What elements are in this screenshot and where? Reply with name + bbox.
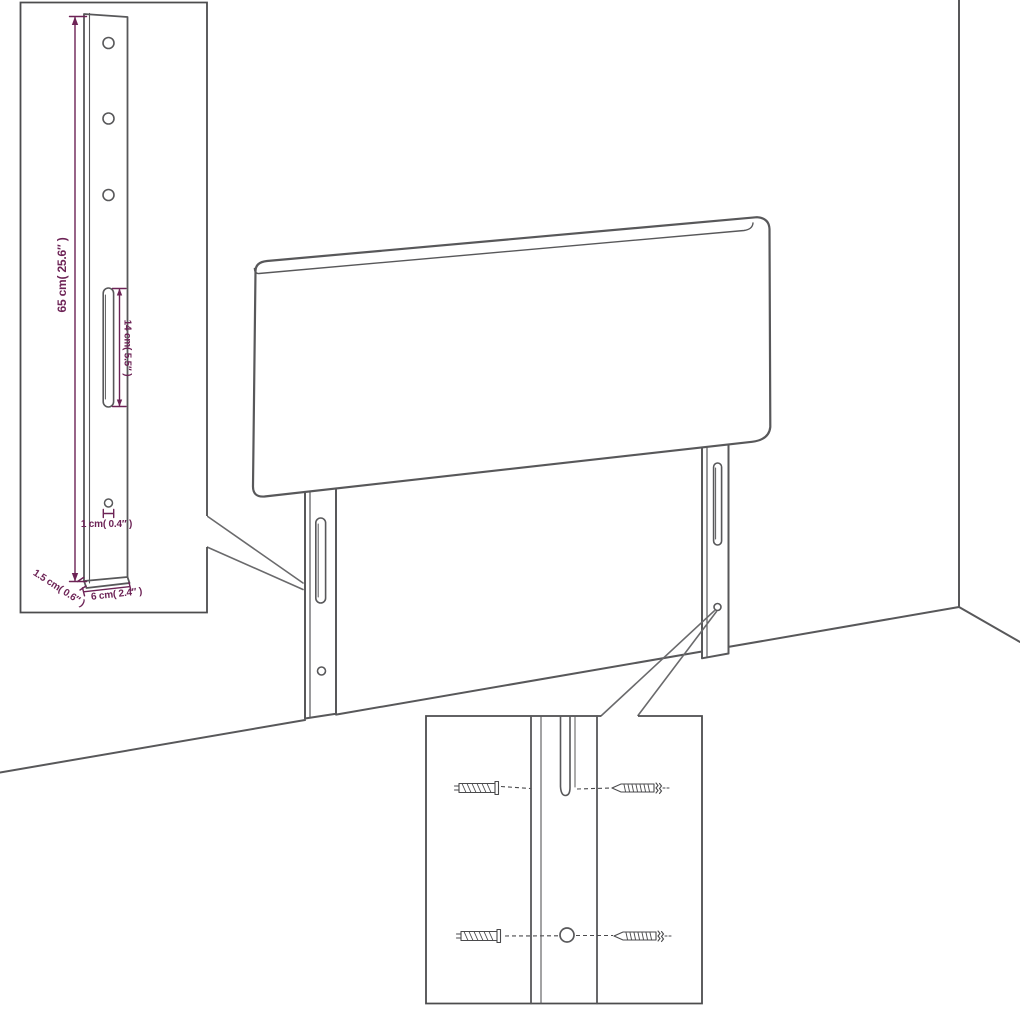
right-leg-face [702, 426, 729, 658]
height-dimension-label: 65 cm( 25.6″ ) [55, 237, 69, 312]
slot-dimension-label: 14 cm( 5.5″ ) [122, 320, 133, 377]
diagram-canvas: 65 cm( 25.6″ ) 14 cm( 5.5″ ) 1 cm( 0.4″ … [0, 0, 1020, 1020]
left-leg [305, 466, 336, 719]
mounting-detail-inset-background [426, 716, 702, 1004]
hole-dimension-label: 1 cm( 0.4″ ) [81, 519, 132, 530]
product-dimension-diagram: 65 cm( 25.6″ ) 14 cm( 5.5″ ) 1 cm( 0.4″ … [0, 0, 1020, 1020]
right-leg [702, 426, 729, 658]
callout-lines [207, 516, 717, 716]
mounting-detail-callout [602, 611, 717, 716]
leg-detail-inset: 65 cm( 25.6″ ) 14 cm( 5.5″ ) 1 cm( 0.4″ … [21, 3, 208, 613]
floor-line-right [959, 607, 1020, 642]
leg-detail-callout [207, 516, 303, 590]
headboard-panel [253, 217, 770, 496]
mounting-detail-inset [426, 716, 702, 1004]
